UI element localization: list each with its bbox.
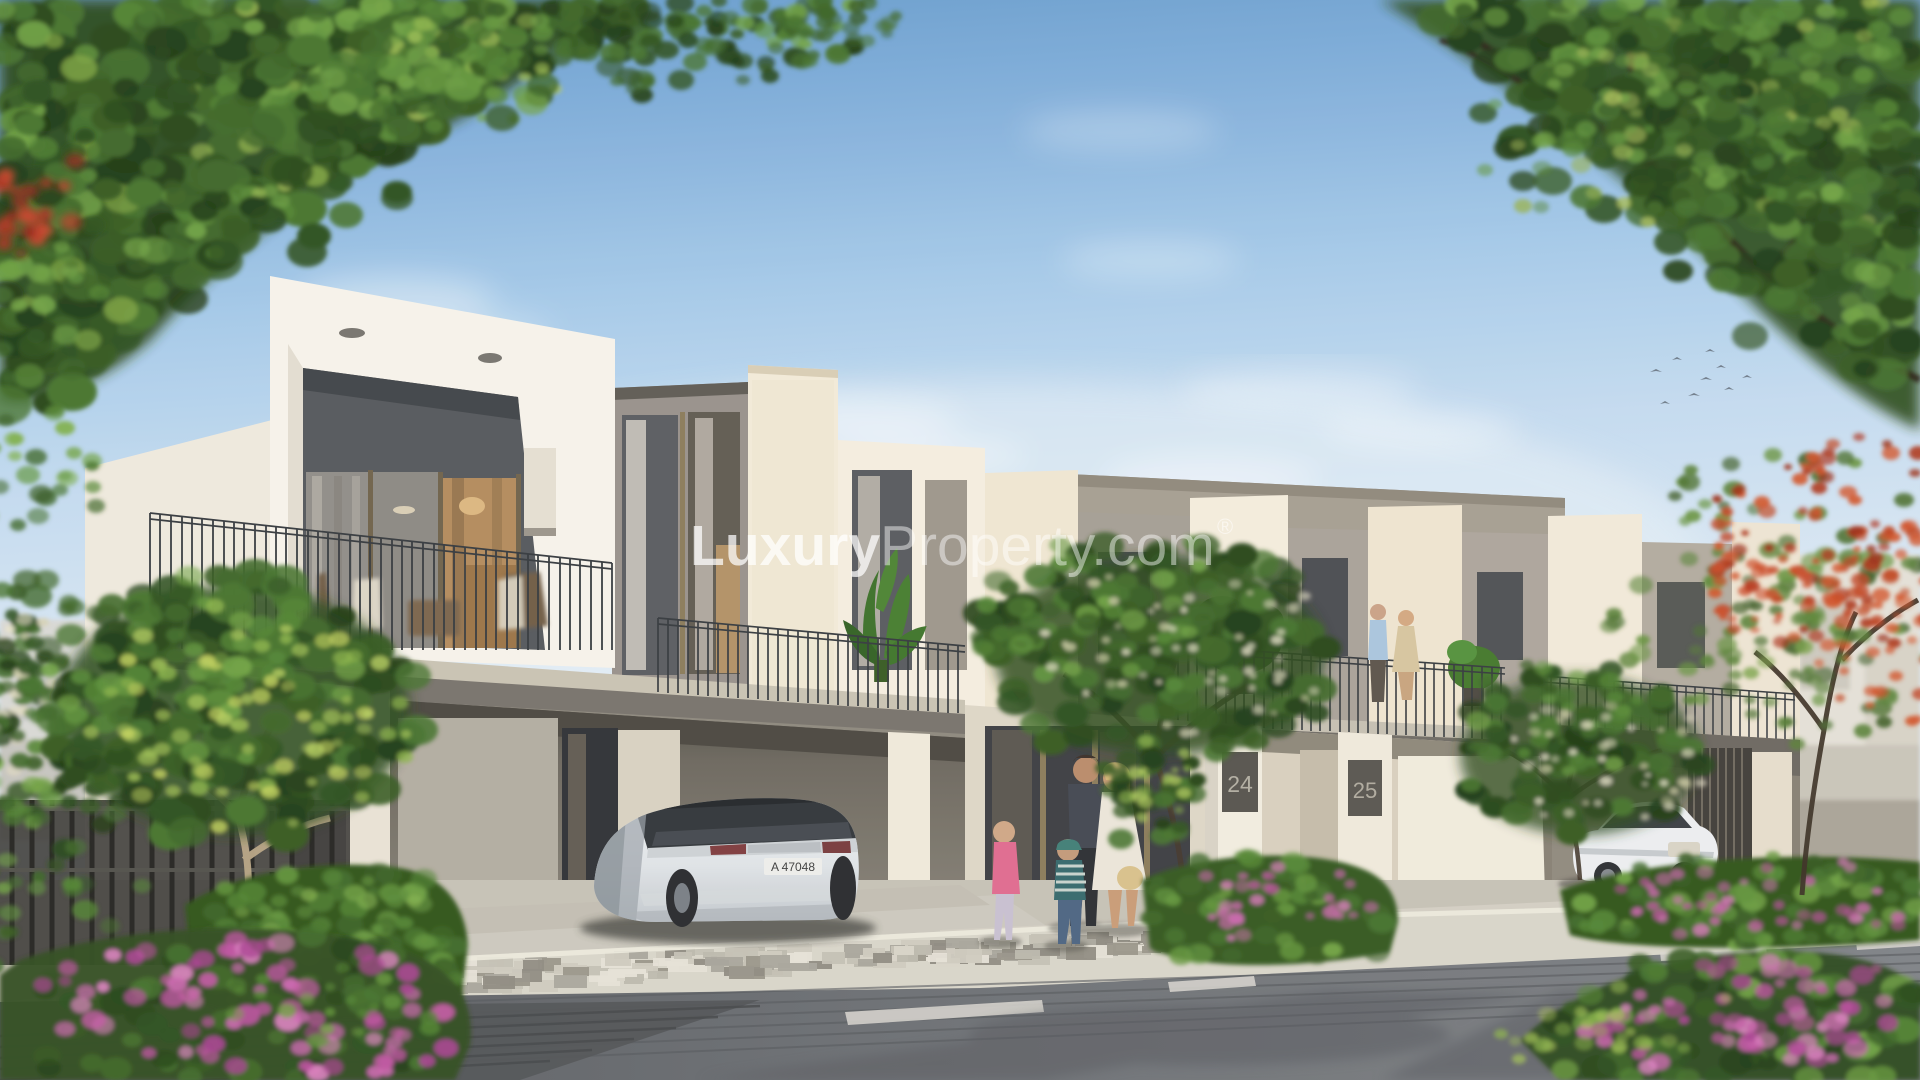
- svg-text:®: ®: [1217, 514, 1233, 539]
- svg-text:Luxury: Luxury: [690, 514, 880, 578]
- svg-text:Property.com: Property.com: [880, 514, 1215, 578]
